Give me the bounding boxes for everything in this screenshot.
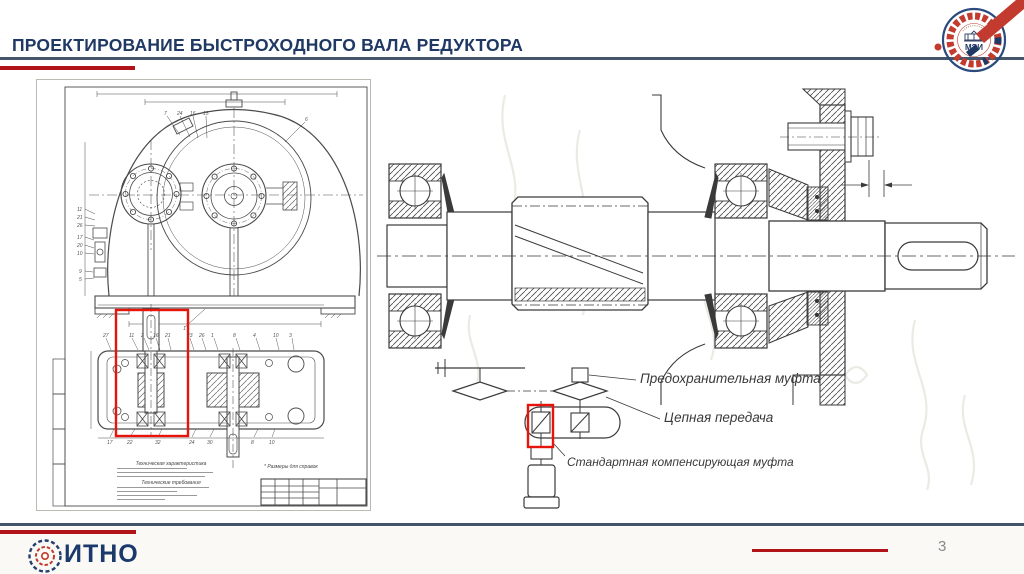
svg-text:11: 11 [129, 333, 134, 339]
svg-text:8: 8 [233, 333, 236, 339]
footer-rule-blue [0, 523, 1024, 526]
svg-text:3: 3 [289, 333, 292, 339]
gearbox-drawing: Техническая характеристика Технические т… [37, 80, 370, 510]
svg-text:24: 24 [188, 440, 195, 446]
mpei-dot [935, 44, 942, 51]
gearbox-drawing-sheet: Техническая характеристика Технические т… [36, 79, 371, 511]
kinematic-diagram [435, 359, 660, 508]
svg-text:2: 2 [140, 333, 144, 339]
footer-rule-red-left [0, 530, 136, 534]
leader-line [606, 397, 660, 419]
svg-text:7: 7 [164, 111, 167, 117]
svg-text:9: 9 [79, 269, 82, 275]
svg-text:17: 17 [107, 440, 113, 446]
oil-gauge [93, 228, 107, 277]
lock-washer-tab [442, 174, 455, 218]
svg-text:27: 27 [102, 333, 109, 339]
safety-coupling-symbol [553, 382, 607, 400]
svg-text:20: 20 [76, 243, 83, 249]
svg-text:1: 1 [183, 326, 186, 332]
svg-text:8: 8 [251, 440, 254, 446]
svg-text:4: 4 [253, 333, 256, 339]
low-speed-shaft [207, 348, 259, 470]
svg-text:10: 10 [273, 333, 279, 339]
front-view-callouts: 7 24 16 15 6 11 21 26 17 20 10 9 5 1 [76, 111, 308, 332]
svg-text:26: 26 [198, 333, 205, 339]
page-number: 3 [938, 538, 946, 555]
tech-req-title: Технические требования [141, 480, 201, 486]
itno-center-dot [42, 553, 48, 559]
label-compensating-coupling: Стандартная компенсирующая муфта [567, 455, 794, 469]
svg-text:16: 16 [153, 333, 159, 339]
svg-text:32: 32 [155, 440, 161, 446]
svg-text:15: 15 [203, 111, 209, 117]
base-plate [95, 296, 355, 318]
itno-logo-icon [27, 538, 63, 574]
svg-text:1: 1 [211, 333, 214, 339]
page-title: ПРОЕКТИРОВАНИЕ БЫСТРОХОДНОГО ВАЛА РЕДУКТ… [12, 35, 523, 56]
svg-text:26: 26 [76, 223, 83, 229]
svg-text:23: 23 [186, 333, 193, 339]
leader-line [589, 375, 636, 380]
header-rule-blue [0, 57, 1024, 60]
leader-line [554, 444, 565, 456]
label-safety-coupling: Предохранительная муфта [640, 371, 821, 386]
svg-text:5: 5 [79, 277, 82, 283]
lock-washer-tab [442, 294, 455, 338]
front-view [85, 91, 363, 327]
filler-plug [173, 118, 193, 134]
svg-text:10: 10 [269, 440, 275, 446]
header-rule-red [0, 66, 135, 70]
title-block [261, 479, 366, 505]
itno-logo-text: ИТНО [64, 540, 139, 569]
svg-text:24: 24 [176, 111, 183, 117]
label-chain-drive: Цепная передача [664, 410, 773, 425]
svg-text:30: 30 [207, 440, 213, 446]
motor-symbol [524, 447, 559, 508]
itno-inner-ring [36, 547, 54, 565]
svg-text:21: 21 [164, 333, 171, 339]
shaft-stub-section [283, 182, 297, 210]
svg-text:11: 11 [77, 207, 82, 213]
svg-text:17: 17 [77, 235, 83, 241]
gear-pair-symbol [453, 382, 507, 400]
mpei-logo: МЭИ [930, 0, 1024, 75]
svg-text:21: 21 [76, 215, 83, 221]
sheet-margin-boxes [53, 359, 65, 506]
svg-text:22: 22 [126, 440, 133, 446]
gear-blank [512, 197, 648, 310]
tech-spec-title: Техническая характеристика [136, 461, 207, 467]
itno-gear-ring [30, 541, 61, 572]
reference-note: * Размеры для справок [264, 464, 318, 470]
svg-text:10: 10 [77, 251, 83, 257]
footer-rule-red-right [752, 549, 888, 552]
housing-bore-line [652, 95, 705, 168]
shaft-assembly-drawing [375, 75, 1024, 515]
svg-text:6: 6 [305, 117, 308, 123]
gap-dimension [841, 160, 912, 197]
svg-text:16: 16 [190, 111, 196, 117]
